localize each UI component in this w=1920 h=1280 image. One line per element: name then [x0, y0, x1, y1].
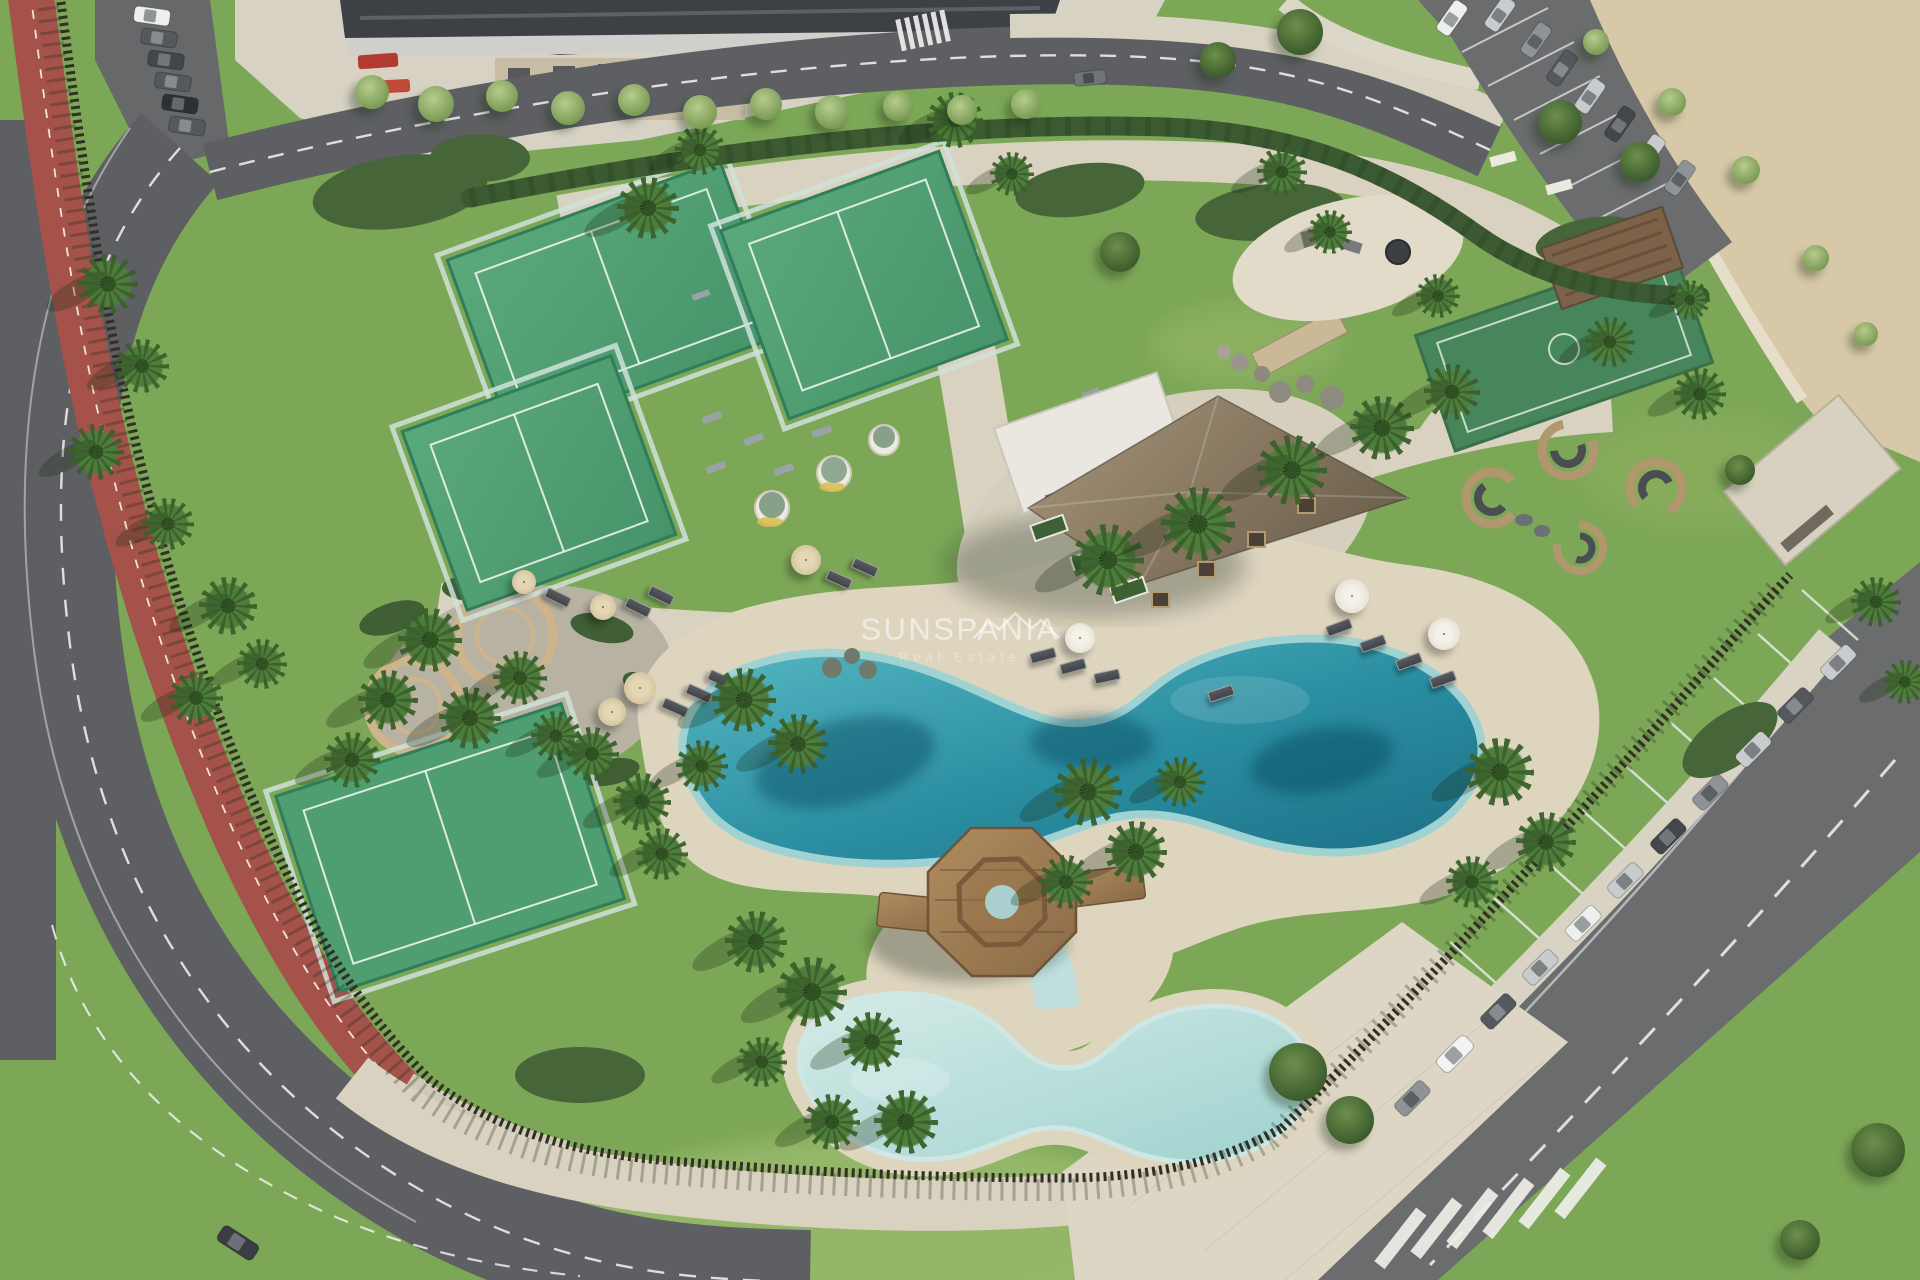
palm-tree: [781, 961, 843, 1023]
palm-tree: [401, 611, 459, 669]
palm-tree: [1470, 742, 1530, 802]
palm-tree: [145, 501, 191, 547]
palm-tree: [1449, 859, 1495, 905]
palm-tree: [118, 342, 166, 390]
palm-tree: [1310, 212, 1350, 252]
bean-bag: [1515, 514, 1550, 537]
planter: [755, 425, 899, 527]
tree: [1732, 156, 1760, 184]
palm-tree: [877, 1093, 935, 1151]
palm-tree: [1427, 367, 1477, 417]
palm-tree: [992, 154, 1032, 194]
tree: [1725, 455, 1755, 485]
palm-tree: [1418, 276, 1458, 316]
palm-tree: [568, 730, 616, 778]
tree: [1277, 9, 1323, 55]
tree: [1803, 245, 1829, 271]
trampoline: [1386, 240, 1410, 264]
tree: [551, 91, 585, 125]
palm-tree: [679, 743, 725, 789]
parasol: [1428, 618, 1460, 650]
tree: [1269, 1043, 1327, 1101]
parasol: [512, 570, 536, 594]
parasol: [598, 698, 626, 726]
car: [1073, 69, 1106, 86]
water-sparkle: [1170, 676, 1310, 724]
palm-tree: [771, 717, 825, 771]
palm-tree: [496, 654, 544, 702]
tree: [1200, 42, 1236, 78]
palm-tree: [1260, 150, 1304, 194]
palm-tree: [1108, 824, 1164, 880]
palm-tree: [1854, 580, 1898, 624]
palm-tree: [1588, 320, 1632, 364]
palm-tree: [1261, 439, 1323, 501]
palm-tree: [620, 180, 676, 236]
tree: [1620, 142, 1660, 182]
palm-tree: [240, 642, 284, 686]
palm-tree: [715, 671, 773, 729]
parasol: [624, 672, 656, 704]
tree: [750, 88, 782, 120]
palm-tree: [1677, 371, 1723, 417]
palm-tree: [1158, 760, 1202, 804]
tree: [1011, 89, 1041, 119]
palm-tree: [1885, 662, 1920, 702]
tree: [1100, 232, 1140, 272]
palm-tree: [1058, 762, 1118, 822]
palm-tree: [1165, 491, 1231, 557]
parasol: [1065, 623, 1095, 653]
palm-tree: [202, 580, 254, 632]
palm-tree: [740, 1040, 784, 1084]
palm-tree: [639, 831, 685, 877]
ground-plane: [0, 0, 1920, 1280]
tree: [683, 95, 717, 129]
tree: [1780, 1220, 1820, 1260]
palm-tree: [728, 914, 784, 970]
tree: [947, 95, 977, 125]
tree: [1658, 88, 1686, 116]
palm-tree: [71, 427, 121, 477]
palm-tree: [1519, 815, 1573, 869]
tree: [815, 95, 849, 129]
parasol: [590, 594, 616, 620]
tree: [618, 84, 650, 116]
car: [215, 1224, 260, 1262]
palm-tree: [1042, 858, 1090, 906]
palm-tree: [327, 735, 377, 785]
parasol: [1335, 579, 1369, 613]
tree: [1326, 1096, 1374, 1144]
tree: [1854, 322, 1878, 346]
palm-tree: [361, 673, 415, 727]
palm-tree: [81, 257, 135, 311]
tree: [355, 75, 389, 109]
tree: [1538, 100, 1582, 144]
palm-tree: [678, 128, 722, 172]
tree: [486, 80, 518, 112]
palm-tree: [845, 1015, 899, 1069]
palm-tree: [1672, 282, 1708, 318]
tree: [1583, 29, 1609, 55]
parasol: [791, 545, 821, 575]
aerial-resort-photo: SUNSPANIA Real Estate: [0, 0, 1920, 1280]
palm-tree: [807, 1097, 857, 1147]
tree: [418, 86, 454, 122]
tree: [1851, 1123, 1905, 1177]
tree: [883, 91, 913, 121]
